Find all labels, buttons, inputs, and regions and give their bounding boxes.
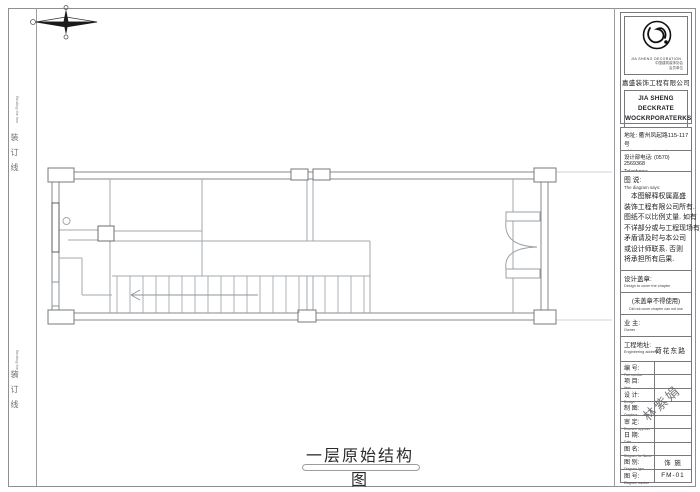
phone-cn: 设计部电话: (0570) 2569368 bbox=[624, 153, 689, 167]
stamp-label-cn: 设计盖章: bbox=[624, 273, 691, 283]
tb-row-date: 日 期:Date bbox=[621, 428, 691, 441]
titleblock-logo-section: JIA SHENG DECORATION 中国建筑装饰协会 会员单位 嘉盛装饰工… bbox=[620, 12, 692, 124]
logo-box: JIA SHENG DECORATION 中国建筑装饰协会 会员单位 bbox=[624, 16, 688, 75]
titleblock-address-section: 地址: 衢州凤起路115-117号 Address Feng Qi Road N… bbox=[620, 127, 692, 151]
row-label-cn: 日 期: bbox=[624, 430, 654, 439]
extension-lines bbox=[548, 172, 612, 320]
stamp-warning-cn: (未盖章不得使用) bbox=[621, 296, 691, 305]
notes-line: 本图解释权属嘉盛 bbox=[624, 192, 689, 203]
row-label-en: Diagram number bbox=[624, 481, 654, 485]
stair-direction-arrow bbox=[131, 290, 258, 300]
stamp-warning-en: Did not cover chapter can not use bbox=[621, 307, 691, 311]
tb-row-drawing-type: 图 别:Diagram type 饰 施 bbox=[621, 455, 691, 468]
logo-membership-line2: 会员单位 bbox=[625, 66, 687, 71]
titleblock-stamp-warning: (未盖章不得使用) Did not cover chapter can not … bbox=[620, 292, 692, 315]
titleblock-phone-section: 设计部电话: (0570) 2569368 Telephone: bbox=[620, 150, 692, 172]
row-value: FM-01 bbox=[654, 470, 691, 482]
row-value bbox=[654, 443, 691, 455]
titleblock-site-section: 工程地址: Engineering address 荷花东路 bbox=[620, 336, 692, 362]
row-value bbox=[654, 429, 691, 441]
entry-double-door bbox=[506, 212, 540, 278]
notes-line: 或设计师联系. 否则 bbox=[624, 245, 689, 256]
notes-line: 图纸不以比例丈量. 如有 bbox=[624, 213, 689, 224]
plan-title-underline bbox=[302, 464, 420, 471]
row-value: 饰 施 bbox=[654, 456, 691, 468]
floor-plan bbox=[0, 0, 700, 492]
company-name-en-box: JIA SHENG DECKRATE WOCKRPORATERKS bbox=[624, 90, 688, 128]
row-label-cn: 图 别: bbox=[624, 457, 654, 466]
company-logo-icon bbox=[625, 18, 689, 56]
notes-title-cn: 图 说: bbox=[624, 174, 689, 184]
row-label-cn: 项 目: bbox=[624, 376, 654, 385]
notes-line: 将承担所有后果. bbox=[624, 255, 689, 266]
notes-title-en: The diagram says: bbox=[624, 185, 689, 190]
outer-walls bbox=[52, 172, 548, 320]
columns bbox=[48, 168, 556, 324]
address-cn: 地址: 衢州凤起路115-117号 bbox=[624, 130, 689, 148]
tb-row-drawing-number: 图 号:Diagram number FM-01 bbox=[621, 469, 691, 482]
row-value bbox=[654, 416, 691, 428]
titleblock-owner-section: 业 主: Owner bbox=[620, 314, 692, 337]
company-name-en-line2: WOCKRPORATERKS bbox=[625, 114, 687, 124]
company-name-cn: 嘉盛装饰工程有限公司 bbox=[621, 77, 691, 87]
company-name-en-line1: JIA SHENG DECKRATE bbox=[625, 94, 687, 114]
owner-label-cn: 业 主: bbox=[624, 318, 691, 327]
notes-line: 矛盾请及时与本公司 bbox=[624, 234, 689, 245]
owner-label-en: Owner bbox=[624, 328, 691, 332]
drawing-sheet: Binding the line 装订线 Binding the line 装订… bbox=[0, 0, 700, 492]
row-label-cn: 图 号: bbox=[624, 471, 654, 480]
stamp-label-en: Design to cover the chapter bbox=[624, 284, 691, 288]
site-value: 荷花东路 bbox=[655, 345, 686, 355]
row-label-cn: 编 号: bbox=[624, 363, 654, 372]
north-compass-icon bbox=[31, 6, 98, 40]
row-value bbox=[654, 362, 691, 374]
row-label-cn: 图 名: bbox=[624, 444, 654, 453]
notes-line: 装饰工程有限公司所有. bbox=[624, 203, 689, 214]
notes-line: 不详部分或与工程现场有 bbox=[624, 224, 689, 235]
titleblock-stamp-section: 设计盖章: Design to cover the chapter bbox=[620, 270, 692, 293]
tb-row-drawing-name: 图 名:Diagram for Name bbox=[621, 442, 691, 455]
row-label-cn: 设 计: bbox=[624, 390, 654, 399]
titleblock-notes-section: 图 说: The diagram says: 本图解释权属嘉盛 装饰工程有限公司… bbox=[620, 171, 692, 271]
